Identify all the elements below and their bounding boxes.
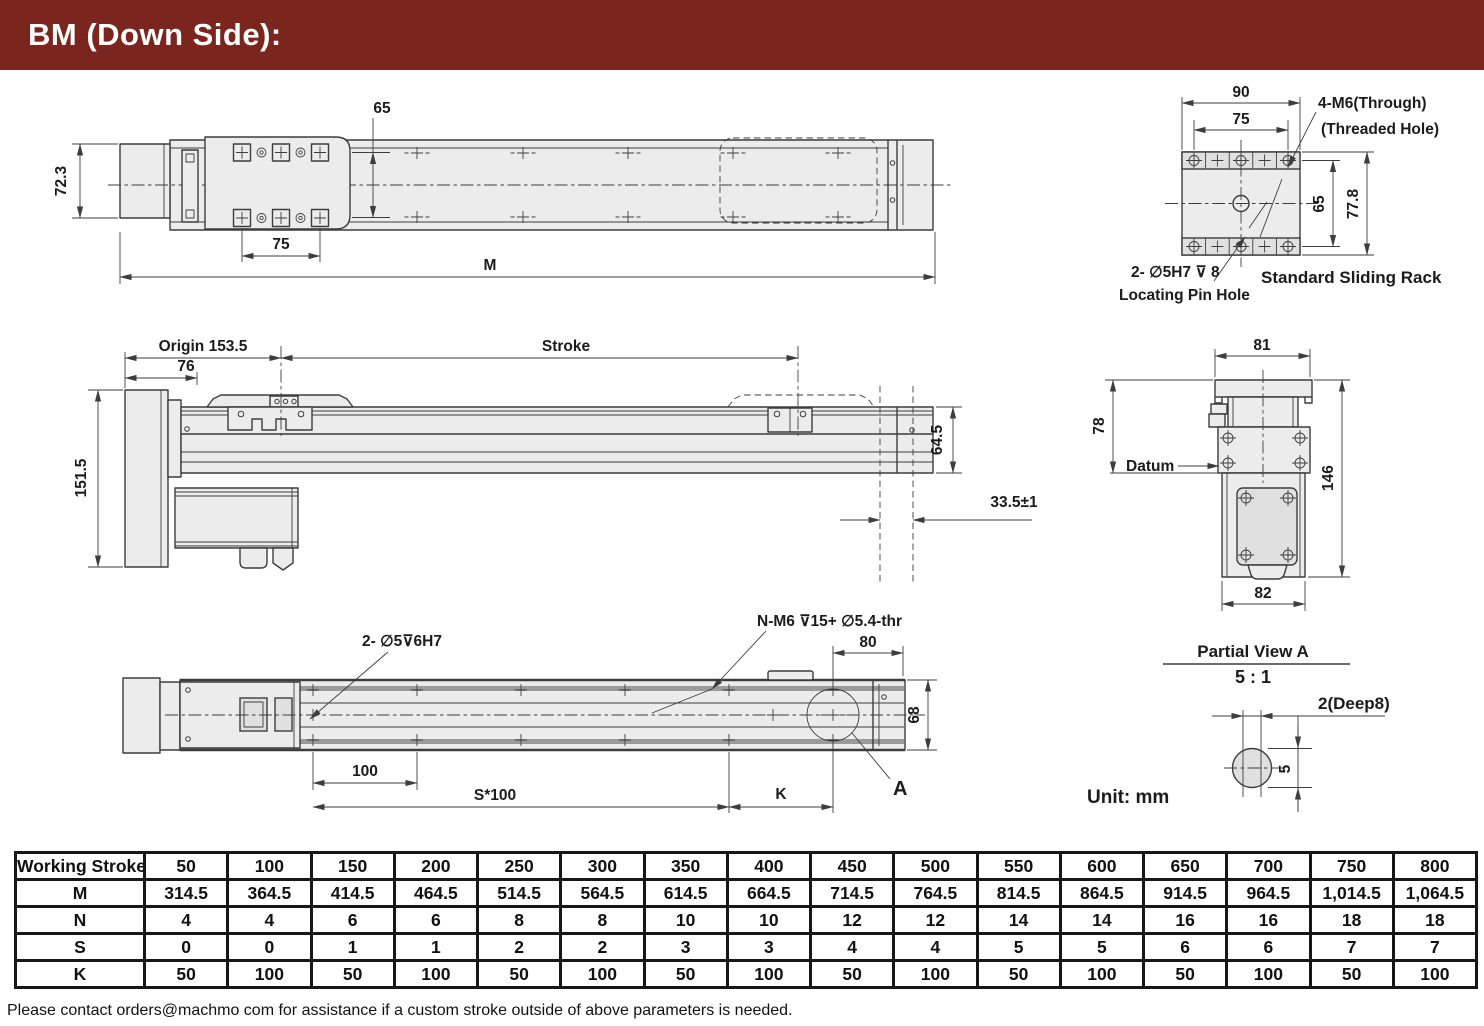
row-label: S: [16, 934, 145, 961]
table-cell: 6: [394, 907, 477, 934]
table-cell: 614.5: [644, 880, 727, 907]
hole-label: 2(Deep8): [1318, 694, 1390, 713]
carriage-end-view: 81 78 Datum 146 82: [1091, 337, 1350, 611]
table-cell: 100: [394, 961, 477, 988]
table-cell: 8: [478, 907, 561, 934]
table-cell: 5: [977, 934, 1060, 961]
rack-end-view: 90 75 65 77.8 4-M6(Through) (Threaded Ho…: [1119, 84, 1442, 304]
table-cell: 10: [727, 907, 810, 934]
table-row-n: N44668810101212141416161818: [16, 907, 1477, 934]
table-cell: 4: [145, 907, 228, 934]
table-cell: 150: [311, 853, 394, 880]
detail-callout: A: [893, 778, 907, 800]
dim-rail-width: 68: [906, 706, 923, 724]
end-block: [120, 144, 170, 218]
dim-carriage-length: 75: [272, 236, 290, 253]
table-cell: 4: [811, 934, 894, 961]
table-cell: 414.5: [311, 880, 394, 907]
partial-view-scale: 5 : 1: [1235, 667, 1271, 687]
table-cell: 18: [1310, 907, 1393, 934]
table-cell: 764.5: [894, 880, 977, 907]
table-cell: 100: [894, 961, 977, 988]
dim-outer-width: 90: [1232, 84, 1249, 101]
table-cell: 6: [311, 907, 394, 934]
table-cell: 50: [1310, 961, 1393, 988]
thread-label: N-M6 ⊽15+ ∅5.4-thr: [757, 613, 902, 630]
row-label: Working Stroke: [16, 853, 145, 880]
table-cell: 1,014.5: [1310, 880, 1393, 907]
table-row-m: M314.5364.5414.5464.5514.5564.5614.5664.…: [16, 880, 1477, 907]
bottom-view: 100 S*100 K 80 68 2- ∅5⊽6H7 N-M6 ⊽15+ ∅5…: [123, 613, 937, 813]
dim-pin-width: 5: [1277, 764, 1294, 773]
dim-total-height: 146: [1320, 465, 1337, 491]
table-cell: 814.5: [977, 880, 1060, 907]
dim-hole-rows: 65: [1311, 195, 1328, 213]
table-cell: 500: [894, 853, 977, 880]
partial-view-a: Partial View A 5 : 1 2(Deep8) 5: [1163, 642, 1390, 812]
table-cell: 100: [228, 961, 311, 988]
dim-hole-pitch: 100: [352, 763, 378, 780]
dim-body-height: 72.3: [53, 166, 70, 197]
table-cell: 100: [228, 853, 311, 880]
table-cell: 16: [1227, 907, 1310, 934]
table-cell: 800: [1393, 853, 1476, 880]
through-hole-label-1: 4-M6(Through): [1318, 95, 1426, 112]
carriage-flange: [1215, 380, 1312, 397]
table-cell: 100: [1060, 961, 1143, 988]
stroke-label: Stroke: [542, 338, 591, 355]
table-cell: 100: [1393, 961, 1476, 988]
dim-total-length: M: [484, 257, 497, 274]
dim-end-offset: 80: [859, 634, 876, 651]
rack-caption: Standard Sliding Rack: [1261, 268, 1442, 287]
page: { "header": { "title": "BM (Down Side):"…: [0, 0, 1484, 1026]
dim-k: K: [775, 786, 787, 803]
table-cell: 700: [1227, 853, 1310, 880]
table-cell: 50: [478, 961, 561, 988]
table-cell: 464.5: [394, 880, 477, 907]
table-cell: 18: [1393, 907, 1476, 934]
dim-upper-height: 78: [1091, 417, 1108, 435]
row-label: N: [16, 907, 145, 934]
row-label: K: [16, 961, 145, 988]
footer-note: Please contact orders@machmo com for ass…: [7, 1002, 793, 1020]
pin-hole-label: 2- ∅5⊽6H7: [362, 633, 442, 650]
phantom-carriage-side-view: [728, 395, 874, 407]
table-row-s: S0011223344556677: [16, 934, 1477, 961]
through-hole-label-2: (Threaded Hole): [1321, 121, 1439, 138]
table-cell: 550: [977, 853, 1060, 880]
table-cell: 14: [977, 907, 1060, 934]
table-cell: 2: [478, 934, 561, 961]
table-cell: 16: [1144, 907, 1227, 934]
table-cell: 50: [145, 961, 228, 988]
table-cell: 50: [644, 961, 727, 988]
table-cell: 2: [561, 934, 644, 961]
table-cell: 1: [311, 934, 394, 961]
table-cell: 50: [311, 961, 394, 988]
table-cell: 964.5: [1227, 880, 1310, 907]
table-cell: 100: [1227, 961, 1310, 988]
table-cell: 714.5: [811, 880, 894, 907]
page-title: BM (Down Side):: [0, 17, 282, 53]
table-cell: 3: [727, 934, 810, 961]
table-cell: 8: [561, 907, 644, 934]
table-cell: 50: [145, 853, 228, 880]
table-cell: 350: [644, 853, 727, 880]
table-cell: 50: [1144, 961, 1227, 988]
table-cell: 3: [644, 934, 727, 961]
datum-label: Datum: [1126, 458, 1174, 475]
table-row-k: K501005010050100501005010050100501005010…: [16, 961, 1477, 988]
under-block: [175, 488, 298, 548]
table-cell: 4: [228, 907, 311, 934]
dim-bottom-width: 82: [1254, 585, 1271, 602]
dim-height: 77.8: [1345, 189, 1362, 220]
table-cell: 7: [1393, 934, 1476, 961]
table-cell: 6: [1227, 934, 1310, 961]
table-row-working-stroke: Working Stroke50100150200250300350400450…: [16, 853, 1477, 880]
table-cell: 314.5: [145, 880, 228, 907]
origin-label: Origin 153.5: [159, 338, 248, 355]
table-cell: 50: [977, 961, 1060, 988]
dim-hole-span: S*100: [474, 787, 516, 804]
table-cell: 650: [1144, 853, 1227, 880]
table-cell: 300: [561, 853, 644, 880]
dim-hole-spacing: 75: [1232, 111, 1250, 128]
motor-block: [125, 390, 168, 567]
table-cell: 364.5: [228, 880, 311, 907]
pin-hole-label-1: 2- ∅5H7 ⊽ 8: [1131, 264, 1220, 281]
table-cell: 564.5: [561, 880, 644, 907]
top-view: 65 75 72.3 M: [53, 100, 952, 284]
table-cell: 100: [561, 961, 644, 988]
unit-label: Unit: mm: [1087, 787, 1169, 808]
table-cell: 0: [228, 934, 311, 961]
table-cell: 514.5: [478, 880, 561, 907]
dim-carriage-rows: 65: [373, 100, 391, 117]
table-cell: 600: [1060, 853, 1143, 880]
table-cell: 12: [811, 907, 894, 934]
partial-view-title: Partial View A: [1197, 642, 1309, 661]
side-view: 151.5 Origin 153.5 76 Stroke 64.5 33.5±1: [73, 338, 1038, 584]
table-cell: 1: [394, 934, 477, 961]
table-cell: 5: [1060, 934, 1143, 961]
dim-end-clearance: 33.5±1: [990, 494, 1038, 511]
table-cell: 14: [1060, 907, 1143, 934]
table-cell: 200: [394, 853, 477, 880]
table-cell: 100: [727, 961, 810, 988]
table-cell: 7: [1310, 934, 1393, 961]
table-cell: 400: [727, 853, 810, 880]
table-cell: 0: [145, 934, 228, 961]
table-cell: 750: [1310, 853, 1393, 880]
table-cell: 914.5: [1144, 880, 1227, 907]
stroke-parameters-table: Working Stroke50100150200250300350400450…: [14, 851, 1478, 989]
dim-rail-height: 64.5: [929, 425, 946, 456]
table-cell: 10: [644, 907, 727, 934]
dim-overall-height: 151.5: [73, 458, 90, 497]
table-cell: 50: [811, 961, 894, 988]
technical-drawing: 65 75 72.3 M: [0, 70, 1484, 850]
table-cell: 250: [478, 853, 561, 880]
table-cell: 450: [811, 853, 894, 880]
table-cell: 664.5: [727, 880, 810, 907]
table-cell: 6: [1144, 934, 1227, 961]
pin-hole-label-2: Locating Pin Hole: [1119, 287, 1250, 304]
dim-left-offset: 76: [177, 358, 195, 375]
row-label: M: [16, 880, 145, 907]
title-bar: BM (Down Side):: [0, 0, 1484, 70]
table-cell: 4: [894, 934, 977, 961]
dim-top-width: 81: [1253, 337, 1271, 354]
table-cell: 12: [894, 907, 977, 934]
table-cell: 864.5: [1060, 880, 1143, 907]
table-cell: 1,064.5: [1393, 880, 1476, 907]
